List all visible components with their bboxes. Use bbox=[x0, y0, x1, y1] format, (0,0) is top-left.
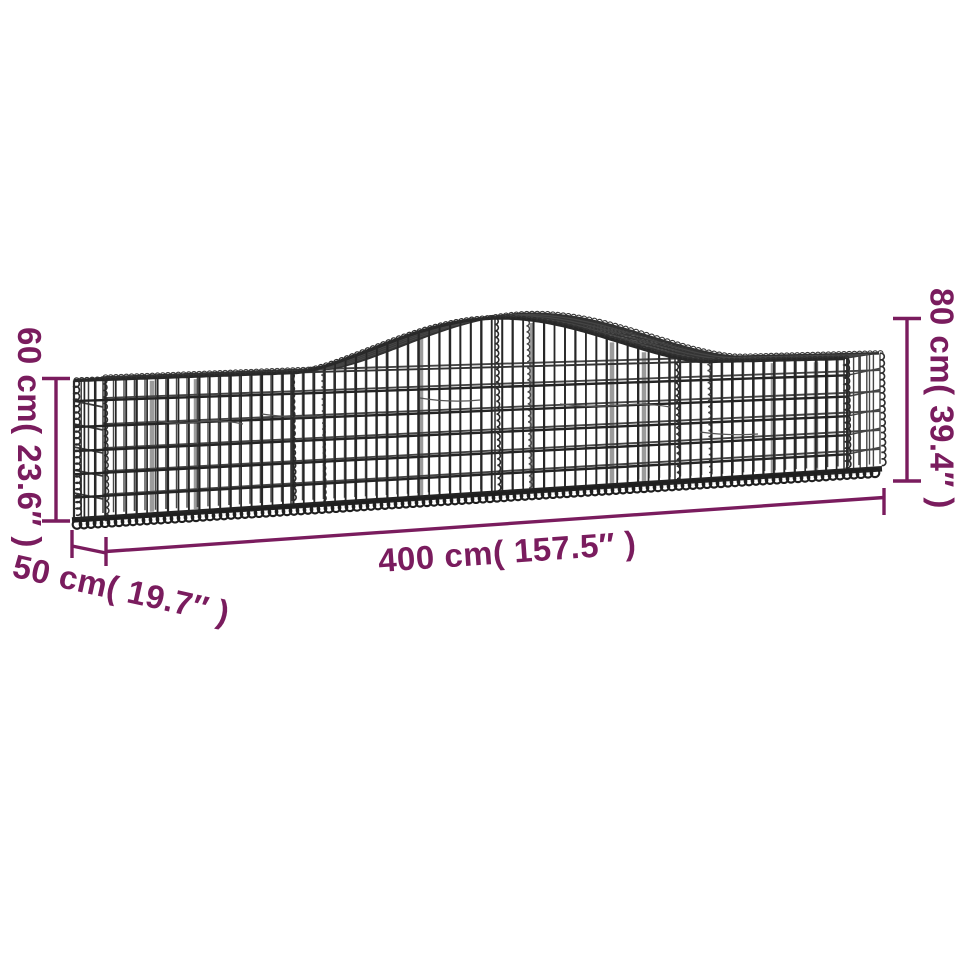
svg-text:60 cm( 23.6″ ): 60 cm( 23.6″ ) bbox=[11, 327, 48, 548]
svg-text:80 cm( 39.4″ ): 80 cm( 39.4″ ) bbox=[924, 288, 960, 509]
